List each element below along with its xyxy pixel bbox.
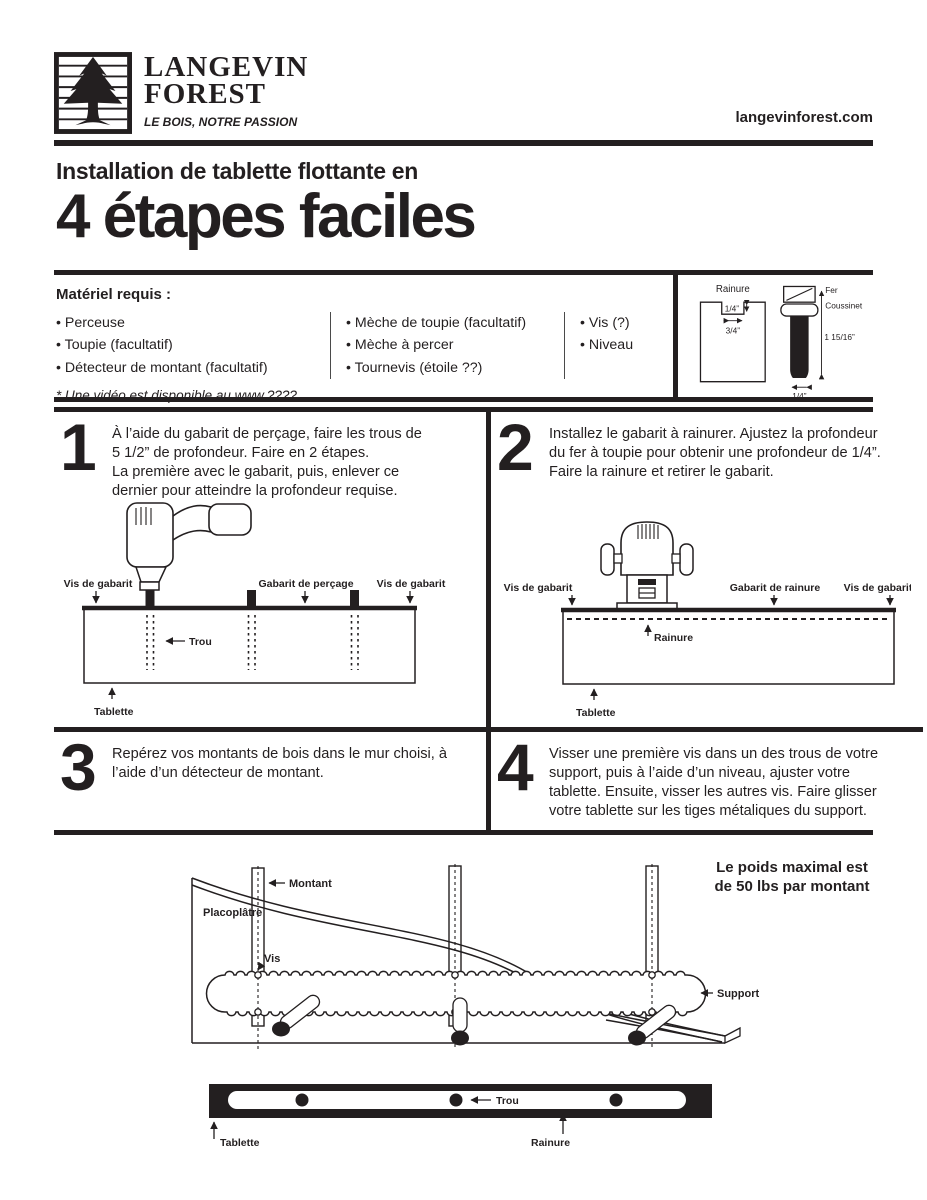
- langevin-forest-logo: LANGEVIN FOREST LE BOIS, NOTRE PASSION: [54, 52, 308, 134]
- tablette-label: Tablette: [220, 1137, 260, 1149]
- wall-mounting-diagram: Montant Placoplâtre Vis Support: [148, 850, 768, 1065]
- materials-list: Matériel requis : Perceuse Toupie (facul…: [54, 275, 673, 397]
- montant-label: Montant: [289, 878, 332, 890]
- step-2: 2 Installez le gabarit à rainurer. Ajust…: [491, 412, 923, 727]
- groove-label: Rainure: [716, 284, 750, 295]
- rainure-label: Rainure: [531, 1137, 570, 1149]
- template-screw-tabs: [146, 590, 360, 608]
- max-weight-line2: de 50 lbs par montant: [707, 877, 877, 896]
- material-item: Mèche à percer: [346, 334, 564, 356]
- support-label: Support: [717, 988, 759, 1000]
- material-item: Mèche de toupie (facultatif): [346, 312, 564, 334]
- instruction-sheet: LANGEVIN FOREST LE BOIS, NOTRE PASSION l…: [0, 0, 927, 1200]
- step-4-text: Visser une première vis dans un des trou…: [549, 740, 919, 821]
- step-3: 3 Repérez vos montants de bois dans le m…: [54, 732, 486, 830]
- router-icon: [601, 522, 693, 610]
- vis-label: Vis: [264, 953, 280, 965]
- vis-gabarit-left-label: Vis de gabarit: [64, 578, 133, 590]
- materials-column-2: Mèche de toupie (facultatif) Mèche à per…: [330, 312, 564, 379]
- step-1-diagram: Vis de gabarit Gabarit de perçage Vis de…: [54, 498, 454, 723]
- shelf-board: [84, 608, 415, 683]
- trou-label: Trou: [496, 1095, 519, 1107]
- shelf-underside-diagram: Tablette Trou Rainure: [203, 1076, 728, 1156]
- cutter-label: Fer: [825, 285, 838, 295]
- tree-logo-icon: [54, 52, 132, 134]
- logo-tagline: LE BOIS, NOTRE PASSION: [144, 115, 308, 129]
- step-1-number: 1: [60, 420, 112, 501]
- material-item: Tournevis (étoile ??): [346, 357, 564, 379]
- step-1: 1 À l’aide du gabarit de perçage, faire …: [54, 412, 486, 727]
- trou-label: Trou: [189, 636, 212, 648]
- materials-column-1: Perceuse Toupie (facultatif) Détecteur d…: [56, 312, 330, 379]
- router-bit-diagram: Rainure 1/4” 3/4” Fer Coussinet 1 15/16”…: [673, 275, 873, 397]
- header: LANGEVIN FOREST LE BOIS, NOTRE PASSION l…: [54, 52, 873, 134]
- step-4: 4 Visser une première vis dans un des tr…: [491, 732, 923, 830]
- steps-section: 1 À l’aide du gabarit de perçage, faire …: [54, 407, 873, 835]
- material-item: Perceuse: [56, 312, 330, 334]
- tip-width-dim: 1/4”: [792, 391, 807, 401]
- groove-width-dim: 3/4”: [726, 326, 741, 336]
- placoplatre-label: Placoplâtre: [203, 907, 262, 919]
- website-url: langevinforest.com: [735, 109, 873, 126]
- page-title: Installation de tablette flottante en 4 …: [56, 158, 474, 248]
- max-weight-note: Le poids maximal est de 50 lbs par monta…: [707, 858, 877, 896]
- title-line2: 4 étapes faciles: [56, 185, 474, 248]
- step-3-text: Repérez vos montants de bois dans le mur…: [112, 740, 482, 794]
- vis-gabarit-right-label: Vis de gabarit: [377, 578, 446, 590]
- tablette-label: Tablette: [576, 707, 616, 719]
- step-4-number: 4: [497, 740, 549, 821]
- gabarit-percage-label: Gabarit de perçage: [258, 578, 353, 590]
- logo-text: LANGEVIN FOREST LE BOIS, NOTRE PASSION: [144, 52, 308, 129]
- gabarit-rainure-label: Gabarit de rainure: [730, 582, 821, 594]
- groove-depth-dim: 1/4”: [725, 303, 740, 313]
- vis-gabarit-left-label: Vis de gabarit: [504, 582, 573, 594]
- shelf-board: [563, 610, 894, 684]
- materials-heading: Matériel requis :: [56, 286, 673, 303]
- bearing-label: Coussinet: [825, 301, 863, 311]
- vis-gabarit-right-label: Vis de gabarit: [844, 582, 911, 594]
- step-1-text: À l’aide du gabarit de perçage, faire le…: [112, 420, 482, 501]
- bit-length-dim: 1 15/16”: [824, 332, 855, 342]
- material-item: Toupie (facultatif): [56, 334, 330, 356]
- logo-name-line1: LANGEVIN: [144, 54, 308, 81]
- max-weight-line1: Le poids maximal est: [707, 858, 877, 877]
- material-item: Vis (?): [580, 312, 673, 334]
- materials-section: Matériel requis : Perceuse Toupie (facul…: [54, 270, 873, 402]
- tablette-label: Tablette: [94, 706, 134, 718]
- material-item: Niveau: [580, 334, 673, 356]
- step-3-number: 3: [60, 740, 112, 794]
- drill-icon: [127, 503, 251, 590]
- step-2-number: 2: [497, 420, 549, 482]
- video-footnote: * Une vidéo est disponible au www.????: [56, 388, 673, 403]
- step-2-text: Installez le gabarit à rainurer. Ajustez…: [549, 420, 919, 482]
- rainure-label: Rainure: [654, 632, 693, 644]
- groove-and-bit-drawing: Rainure 1/4” 3/4” Fer Coussinet 1 15/16”…: [686, 280, 873, 402]
- header-rule: [54, 140, 873, 146]
- logo-name-line2: FOREST: [144, 81, 308, 108]
- materials-column-3: Vis (?) Niveau: [564, 312, 673, 379]
- material-item: Détecteur de montant (facultatif): [56, 357, 330, 379]
- title-line1: Installation de tablette flottante en: [56, 158, 474, 185]
- step-2-diagram: Vis de gabarit Gabarit de rainure Vis de…: [491, 498, 911, 723]
